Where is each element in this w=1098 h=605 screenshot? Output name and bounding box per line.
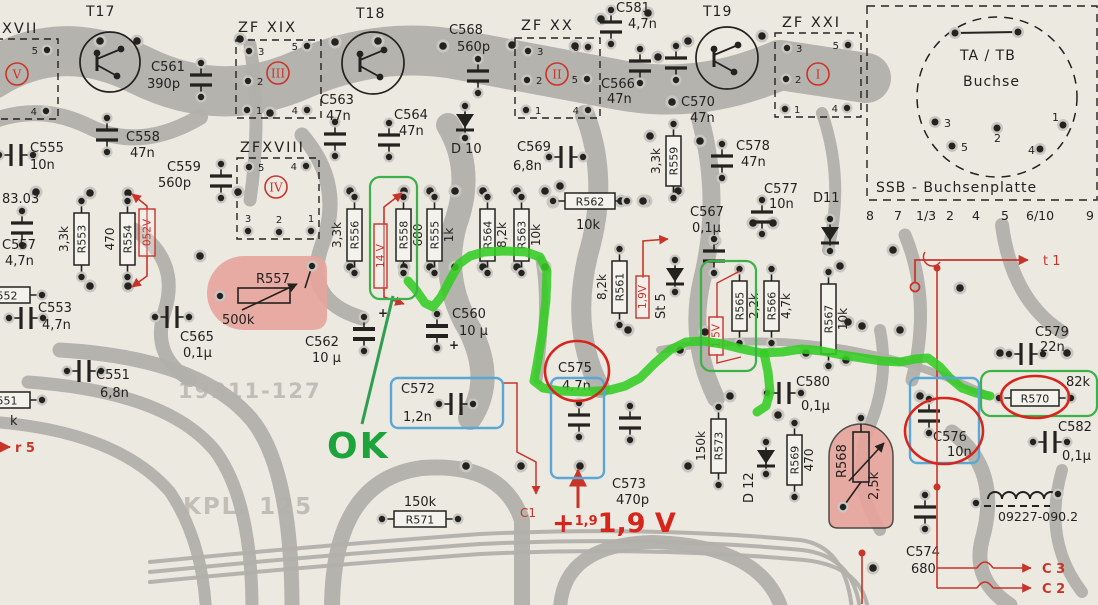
solder-pad-core xyxy=(1030,439,1036,445)
solder-pad-core xyxy=(198,94,204,100)
copper-trace xyxy=(250,45,256,200)
capacitor-name: C559 xyxy=(167,160,201,175)
printed-text: 83.03 xyxy=(2,192,39,207)
solder-pad-core xyxy=(673,43,679,49)
transistor-pin xyxy=(114,73,121,80)
solder-pad-core xyxy=(124,274,130,280)
solder-pad-core xyxy=(719,141,725,147)
solder-pad-core xyxy=(715,404,721,410)
resistor-value: 2,2k xyxy=(747,293,761,319)
solder-pad-core xyxy=(44,47,50,53)
transistor-pin xyxy=(357,51,364,58)
capacitor-name: C562 xyxy=(305,335,339,350)
capacitor-name: C579 xyxy=(1035,325,1069,340)
solder-pad-core xyxy=(518,270,524,276)
pin-number: 3 xyxy=(258,47,264,58)
pin-number: 4 xyxy=(832,104,838,115)
solder-pad-core xyxy=(922,526,928,532)
solder-pad-core xyxy=(768,266,774,272)
ssb-pin-number: 6/10 xyxy=(1026,208,1054,223)
capacitor-name: C560 xyxy=(452,307,486,322)
pin-number: 5 xyxy=(961,141,968,154)
solder-pad-core xyxy=(276,229,282,235)
roman-numeral: III xyxy=(271,67,285,81)
solder-pad-core xyxy=(400,270,406,276)
solder-pad-core xyxy=(475,90,481,96)
pin-number: 4 xyxy=(1028,144,1035,157)
transistor-pin xyxy=(735,42,742,49)
resistor-value: 470 xyxy=(802,449,816,472)
solder-pad-core xyxy=(783,76,789,82)
solder-pad-core xyxy=(541,187,549,195)
capacitor-name: C580 xyxy=(796,375,830,390)
capacitor-name: C551 xyxy=(96,368,130,383)
solder-pad-core xyxy=(639,197,647,205)
solder-pad-core xyxy=(78,198,84,204)
solder-pad-core xyxy=(152,314,158,320)
solder-pad-core xyxy=(616,246,622,252)
diode-label: D 10 xyxy=(451,142,482,157)
resistor-value: 82k xyxy=(1066,375,1091,390)
pin-number: 2 xyxy=(795,75,801,86)
resistor-value: 3,3k xyxy=(330,222,344,248)
solder-pad-core xyxy=(439,42,447,50)
resistor-name: R569 xyxy=(789,446,802,475)
solder-pad-core xyxy=(386,154,392,160)
ok-annotation: OK xyxy=(327,426,390,467)
pin-number: 4 xyxy=(291,162,297,173)
pot-name: R557 xyxy=(256,272,290,287)
ssb-pin-number: 2 xyxy=(946,208,954,223)
solder-pad-core xyxy=(585,107,591,113)
solder-pad-core xyxy=(825,269,831,275)
solder-pad-core xyxy=(86,282,94,290)
resistor-name: R566 xyxy=(766,292,779,321)
resistor-name: 552 xyxy=(0,290,18,303)
pin-number: 3 xyxy=(245,214,251,225)
solder-pad-core xyxy=(672,289,678,295)
solder-pad-core xyxy=(791,494,797,500)
resistor-name: R559 xyxy=(668,147,681,176)
solder-pad-core xyxy=(234,188,242,196)
solder-pad-core xyxy=(218,161,224,167)
solder-pad-core xyxy=(637,80,643,86)
solder-pad-core xyxy=(840,504,846,510)
solder-pad-core xyxy=(517,462,525,470)
solder-pad-core xyxy=(462,103,468,109)
solder-pad-core xyxy=(952,30,959,37)
ssb-pin-number: 1/3 xyxy=(916,208,936,223)
red-annotation-text: r 5 xyxy=(15,441,35,456)
capacitor-value: 6,8n xyxy=(513,159,542,174)
pin-number: 6 xyxy=(573,43,579,54)
capacitor-value: 560p xyxy=(158,176,191,191)
module-label: ZFXVIII xyxy=(240,140,305,156)
solder-pad-core xyxy=(827,248,833,254)
capacitor-value: 470p xyxy=(616,493,649,508)
roman-numeral: IV xyxy=(269,181,283,195)
transistor-label: T18 xyxy=(355,6,385,22)
solder-pad-core xyxy=(351,194,357,200)
red-junction-dot xyxy=(859,550,866,557)
capacitor-name: C572 xyxy=(401,382,435,397)
pin-number: 2 xyxy=(257,77,263,88)
solder-pad-core xyxy=(436,401,442,407)
solder-pad-core xyxy=(580,154,586,160)
solder-pad-core xyxy=(994,125,1001,132)
resistor-name: R561 xyxy=(614,273,627,302)
solder-pad-core xyxy=(973,500,979,506)
resistor-name: R565 xyxy=(734,292,747,321)
solder-pad-core xyxy=(726,392,734,400)
pin-number: 3 xyxy=(796,44,802,55)
solder-pad-core xyxy=(696,137,704,145)
capacitor-value: 10 µ xyxy=(312,351,341,366)
solder-pad-core xyxy=(711,270,717,276)
capacitor-name: C566 xyxy=(601,77,635,92)
diode-label: St 5 xyxy=(654,293,669,319)
resistor-name: R554 xyxy=(122,225,135,254)
solder-pad-core xyxy=(673,77,679,83)
transistor-label: T17 xyxy=(85,4,115,20)
solder-pad-core xyxy=(624,198,630,204)
solder-pad-core xyxy=(484,270,490,276)
solder-pad-core xyxy=(431,194,437,200)
transistor-pin xyxy=(711,46,718,53)
ssb-pin-number: 4 xyxy=(972,208,980,223)
capacitor-name: C568 xyxy=(449,23,483,38)
solder-pad-core xyxy=(949,143,956,150)
module-label: ZF XX xyxy=(521,18,574,34)
solder-pad-core xyxy=(1037,146,1044,153)
pin-number: 5 xyxy=(292,42,298,53)
resistor-value: 150k xyxy=(694,431,708,461)
voltage-tag-text: 14 V xyxy=(375,243,387,268)
solder-pad-core xyxy=(124,198,130,204)
solder-pad-core xyxy=(684,37,692,45)
solder-pad-core xyxy=(186,314,192,320)
solder-pad-core xyxy=(451,187,459,195)
solder-pad-core xyxy=(616,322,622,328)
pin-number: 3 xyxy=(944,117,951,130)
solder-pad-core xyxy=(956,284,964,292)
solder-pad-core xyxy=(525,48,531,54)
solder-pad-core xyxy=(584,76,590,82)
pin-number: 2 xyxy=(994,132,1001,145)
solder-pad-core xyxy=(400,194,406,200)
solder-pad-core xyxy=(827,216,833,222)
resistor-name: R570 xyxy=(1021,393,1050,406)
ssb-pin-number: 5 xyxy=(1001,208,1009,223)
resistor-value: k xyxy=(10,414,18,429)
solder-pad-core xyxy=(858,322,866,330)
pin-number: 1 xyxy=(256,106,262,117)
solder-pad-core xyxy=(374,37,382,45)
resistor-value: 4,7k xyxy=(779,293,793,319)
solder-pad-core xyxy=(922,492,928,498)
pin-number: 5 xyxy=(32,46,38,57)
solder-pad-core xyxy=(916,392,924,400)
solder-pad-core xyxy=(39,292,45,298)
pin-number: 4 xyxy=(31,107,37,118)
red-annotation-text: C 3 xyxy=(1042,562,1065,577)
solder-pad-core xyxy=(791,420,797,426)
module-label: ZF XIX xyxy=(238,20,297,36)
transistor-pin xyxy=(731,69,738,76)
pin-number: 1 xyxy=(535,106,541,117)
roman-numeral: I xyxy=(816,68,821,82)
solder-pad-core xyxy=(1055,491,1061,497)
resistor-value: 10k xyxy=(836,308,850,330)
resistor-name: R562 xyxy=(576,196,605,209)
capacitor-value: 4,7n xyxy=(628,17,657,32)
solder-pad-core xyxy=(784,45,790,51)
pot-name: R568 xyxy=(835,444,850,478)
capacitor-value: 47n xyxy=(326,109,351,124)
capacitor-value: 0,1µ xyxy=(801,399,830,414)
solder-pad-core xyxy=(715,482,721,488)
solder-pad-core xyxy=(926,430,932,436)
capacitor-name: C581 xyxy=(616,1,650,16)
capacitor-value: 47n xyxy=(690,111,715,126)
solder-pad-core xyxy=(303,163,309,169)
solder-pad-core xyxy=(763,471,769,477)
capacitor-name: C577 xyxy=(764,182,798,197)
resistor-value: 10k xyxy=(576,218,601,233)
solder-pad-core xyxy=(43,108,49,114)
pin-number: 3 xyxy=(537,47,543,58)
solder-pad-core xyxy=(379,516,385,522)
capacitor-value: 0,1µ xyxy=(183,346,212,361)
solder-pad-core xyxy=(523,107,529,113)
link xyxy=(955,32,1018,33)
diode-label: D 12 xyxy=(742,472,757,503)
roman-numeral: II xyxy=(552,68,562,82)
capacitor-name: C570 xyxy=(681,95,715,110)
pin-number: 1 xyxy=(794,105,800,116)
capacitor-name: C578 xyxy=(736,139,770,154)
solder-pad-core xyxy=(351,270,357,276)
solder-pad-core xyxy=(646,132,654,140)
socket-label: Buchse xyxy=(963,74,1020,90)
red-annotation-text: C1 xyxy=(520,506,536,520)
solder-pad-core xyxy=(246,164,252,170)
solder-pad-core xyxy=(6,315,12,321)
solder-pad-core xyxy=(759,197,765,203)
potentiometer-R557: R557500k xyxy=(207,256,327,330)
solder-pad-core xyxy=(844,105,850,111)
diode-label: D11 xyxy=(813,191,840,206)
capacitor-name: C573 xyxy=(612,477,646,492)
ssb-pin-number: 8 xyxy=(866,208,874,223)
solder-pad-core xyxy=(627,437,633,443)
resistor-name: R553 xyxy=(76,225,89,254)
transistor-pin xyxy=(94,50,101,57)
transistor-pin xyxy=(118,46,125,53)
ssb-pin-number: 9 xyxy=(1086,208,1094,223)
capacitor-name: C563 xyxy=(320,93,354,108)
solder-pad-core xyxy=(245,78,251,84)
solder-pad-core xyxy=(86,189,94,197)
polarity-plus: + xyxy=(449,338,459,352)
transistor-label: T19 xyxy=(702,4,732,20)
capacitor-name: C558 xyxy=(126,130,160,145)
solder-pad-core xyxy=(670,121,676,127)
capacitor-value: 4,7n xyxy=(5,254,34,269)
pin-number: 4 xyxy=(573,106,579,117)
red-junction-dot xyxy=(934,484,941,491)
resistor-name: R556 xyxy=(349,221,362,250)
solder-pad-core xyxy=(763,439,769,445)
capacitor-value: 47n xyxy=(607,92,632,107)
capacitor-name: C555 xyxy=(30,141,64,156)
pin-number: 1 xyxy=(1052,111,1059,124)
solder-pad-core xyxy=(654,53,662,61)
inductor-label: 09227-090.2 xyxy=(998,509,1078,524)
solder-pad-core xyxy=(825,363,831,369)
resistor-value: 150k xyxy=(404,495,437,510)
capacitor-value: 10n xyxy=(769,197,794,212)
capacitor-name: C553 xyxy=(38,301,72,316)
capacitor-name: C564 xyxy=(394,108,428,123)
solder-pad-core xyxy=(556,182,564,190)
solder-pad-core xyxy=(1006,351,1012,357)
solder-pad-core xyxy=(431,270,437,276)
schematic-canvas: 19311-127KPL. 12583.03XVIIV54ZF XIXIII32… xyxy=(0,0,1098,605)
capacitor-value: 10 µ xyxy=(459,324,488,339)
solder-pad-core xyxy=(896,326,904,334)
pin-number: 1 xyxy=(308,214,314,225)
solder-pad-core xyxy=(244,107,250,113)
capacitor-value: 10n xyxy=(30,158,55,173)
solder-pad-core xyxy=(361,348,367,354)
capacitor-value: 47n xyxy=(399,124,424,139)
solder-pad-core xyxy=(196,252,204,260)
capacitor-value: 0,1µ xyxy=(1062,449,1091,464)
capacitor-name: C569 xyxy=(517,140,551,155)
module-label: XVII xyxy=(2,21,38,37)
capacitor-value: 6,8n xyxy=(100,386,129,401)
solder-pad-core xyxy=(774,411,782,419)
voltage-callout-1v9: +1,91,9 V xyxy=(552,508,676,539)
resistor-value: 1k xyxy=(442,228,456,243)
solder-pad-core xyxy=(304,43,310,49)
solder-pad-core xyxy=(19,208,25,214)
capacitor-value: 0,1µ xyxy=(692,221,721,236)
solder-pad-core xyxy=(759,231,765,237)
solder-pad-core xyxy=(386,120,392,126)
solder-pad-core xyxy=(304,107,310,113)
voltage-tag-text: 1,9V xyxy=(637,284,649,309)
solder-pad-core xyxy=(768,340,774,346)
solder-pad-core xyxy=(845,42,851,48)
solder-pad-core xyxy=(104,149,110,155)
resistor-value: 3,3k xyxy=(57,226,71,252)
solder-pad-core xyxy=(608,7,614,13)
solder-pad-core xyxy=(455,516,461,522)
module-label: ZF XXI xyxy=(782,15,841,31)
solder-pad-core xyxy=(246,48,252,54)
solder-pad-core xyxy=(889,246,897,254)
solder-pad-core xyxy=(932,119,939,126)
solder-pad-core xyxy=(218,195,224,201)
resistor-name: R573 xyxy=(713,432,726,461)
capacitor-value: 4,7n xyxy=(42,318,71,333)
solder-pad-core xyxy=(64,368,70,374)
voltage-tag-text: 052V xyxy=(142,218,154,246)
capacitor-value: 22n xyxy=(1040,340,1065,355)
solder-pad-core xyxy=(627,403,633,409)
transistor-pin xyxy=(381,47,388,54)
resistor-name: 551 xyxy=(0,395,18,408)
solder-pad-core xyxy=(124,282,132,290)
pin-number: 2 xyxy=(276,215,282,226)
solder-pad-core xyxy=(668,98,676,106)
solder-pad-core xyxy=(576,434,582,440)
socket-label: TA / TB xyxy=(959,48,1016,64)
solder-pad-core xyxy=(245,228,251,234)
capacitor-name: C567 xyxy=(690,205,724,220)
solder-pad-core xyxy=(462,135,468,141)
solder-pad-core xyxy=(1064,439,1070,445)
solder-pad-core xyxy=(484,194,490,200)
solder-pad-core xyxy=(104,115,110,121)
roman-numeral: V xyxy=(12,68,22,82)
resistor-name: R558 xyxy=(398,221,411,250)
pot-value: 500k xyxy=(222,313,255,328)
solder-pad-core xyxy=(624,326,632,334)
solder-pad-core xyxy=(236,35,244,43)
solder-pad-core xyxy=(331,38,339,46)
solder-pad-core xyxy=(836,262,844,270)
resistor-name: R567 xyxy=(823,305,836,334)
solder-pad-core xyxy=(701,328,709,336)
solder-pad-core xyxy=(39,397,45,403)
capacitor-value: 680 xyxy=(911,562,936,577)
solder-pad-core xyxy=(858,415,864,421)
solder-pad-core xyxy=(585,44,591,50)
printed-texts: 83.03 xyxy=(2,192,39,207)
pin-number: 4 xyxy=(292,106,298,117)
capacitor-name: C565 xyxy=(180,330,214,345)
solder-pad-core xyxy=(524,77,530,83)
solder-pad-core xyxy=(332,153,338,159)
pin-number: 5 xyxy=(572,75,578,86)
capacitor-name: C576 xyxy=(933,430,967,445)
solder-pad-core xyxy=(198,60,204,66)
capacitor-value: 1,2n xyxy=(403,410,432,425)
transistor-pin xyxy=(377,74,384,81)
capacitor-name: C557 xyxy=(2,238,36,253)
resistor-value: 3,3k xyxy=(649,148,663,174)
solder-pad-core xyxy=(798,390,804,396)
resistor-name: R555 xyxy=(429,221,442,250)
pin-number: 5 xyxy=(258,163,264,174)
solder-pad-core xyxy=(576,462,584,470)
red-junction-dot xyxy=(934,265,941,272)
solder-pad-core xyxy=(308,228,314,234)
solder-pad-core xyxy=(462,462,470,470)
solder-pad-core xyxy=(1015,29,1022,36)
ssb-pin-number: 7 xyxy=(894,208,902,223)
solder-pad-core xyxy=(470,401,476,407)
solder-pad-core xyxy=(434,311,440,317)
solder-pad-core xyxy=(711,236,717,242)
capacitor-value: 390p xyxy=(147,77,180,92)
solder-pad-core xyxy=(758,32,766,40)
solder-pad-core xyxy=(550,198,556,204)
solder-pad-core xyxy=(672,257,678,263)
